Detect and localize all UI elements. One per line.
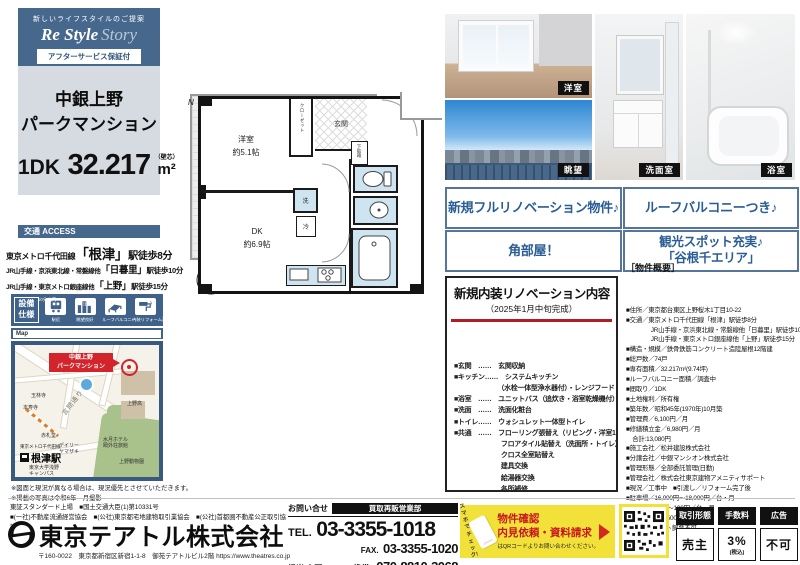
company-url: https://www.theatres.co.jp xyxy=(216,553,290,560)
feature-renovated: 内装リフォーム済 xyxy=(130,298,160,323)
brand-header: 新しいライフスタイルのご提案 Re StyleStory アフターサービス保証付 xyxy=(18,8,160,66)
photo-label: 洋室 xyxy=(558,81,589,95)
property-size: 1DK 32.217 （壁芯） m² xyxy=(18,149,160,182)
station-label: 根津駅 xyxy=(20,450,61,465)
map-poi: 上野動物園 xyxy=(119,459,144,465)
fax-number: 03-3355-1020 xyxy=(383,541,458,556)
overview-line: ■土地権利／所有権 xyxy=(626,395,798,405)
overview-line: ■分譲会社／中銀マンシオン株式会社 xyxy=(626,454,798,464)
renovation-item: ■浴室 …… ユニットバス（追炊き・浴室乾燥機付） xyxy=(454,394,609,405)
photo-label: 浴室 xyxy=(761,163,792,177)
toilet-icon xyxy=(355,167,396,191)
overview-line: ■住所／東京都台東区上野桜木1丁目10-22 xyxy=(626,306,798,316)
feature-good-view: 眺望良好 xyxy=(70,298,100,323)
floor-area-value: 32.217 xyxy=(67,149,150,181)
overview-line: ■管理費／6,100円／月 xyxy=(626,415,798,425)
arrow-right-icon xyxy=(599,524,610,540)
property-name-panel: 中銀上野 パークマンション 1DK 32.217 （壁芯） m² xyxy=(18,66,160,195)
feature-roof-balcony: ルーフバルコニー xyxy=(100,298,130,323)
catchphrase-corner-room: 角部屋！ xyxy=(445,230,622,272)
property-name: 中銀上野 パークマンション xyxy=(18,66,160,137)
map-notes: ※図面と現況が異なる場合は、現況優先とさせていただきます。 ※掲載の写真は令和6… xyxy=(11,484,201,504)
deal-header: 取引形態 xyxy=(676,507,714,525)
overview-line: ■現況／工事中 ■引渡し／リフォーム完了後 xyxy=(626,484,798,494)
property-name-line1: 中銀上野 xyxy=(18,88,160,113)
qr-code xyxy=(619,504,669,558)
feature-label: 内装リフォーム済 xyxy=(132,316,158,322)
station-icon xyxy=(20,453,29,462)
interior-wall xyxy=(201,190,293,193)
kitchen-counter xyxy=(286,265,346,286)
contact-block: お問い合せ 買取再販営業部 TEL. 03-3355-1018 FAX. 03-… xyxy=(288,503,458,565)
deal-value: 不可 xyxy=(760,528,798,561)
feature-label: 駅近 xyxy=(43,316,68,322)
overview-line: ■交通／東京メトロ千代田線「根津」駅徒歩8分 xyxy=(626,316,798,326)
washer-space: 洗 xyxy=(293,188,318,213)
renovation-item: ■キッチン…… システムキッチン xyxy=(454,372,609,383)
qr-code-icon xyxy=(624,511,664,551)
brand-logo-main: Re Style xyxy=(41,25,98,44)
photo-western-room: 洋室 xyxy=(445,14,592,98)
renovation-detail-box: 新規内装リノベーション内容 （2025年1月中旬完成） ■玄関 …… 玄関収納■… xyxy=(445,276,618,492)
overview-title: ［物件概要］ xyxy=(626,261,798,274)
overview-line: ■管理会社／株式会社東京建物アメニティサポート xyxy=(626,474,798,484)
promo-note: はQRコードよりお問い合わせください。 xyxy=(497,542,599,550)
interior-wall xyxy=(315,149,351,151)
access-header: 交通 ACCESS xyxy=(18,225,160,238)
property-name-line2: パークマンション xyxy=(18,113,160,138)
overview-line: ■施工会社／松井建設株式会社 xyxy=(626,444,798,454)
overview-line: ■修繕積立金／6,980円／月 xyxy=(626,425,798,435)
brand-logo-sub: Story xyxy=(101,25,137,44)
fridge-space: 冷 xyxy=(296,216,316,237)
renovation-item: クロス全室貼替え xyxy=(454,450,609,461)
telephone-row: TEL. 03-3355-1018 xyxy=(288,518,458,542)
photo-mirror xyxy=(617,36,663,94)
toilet-room xyxy=(353,165,398,193)
photo-door xyxy=(665,22,679,174)
photo-bathroom: 浴室 xyxy=(686,14,795,180)
overview-line: ■総戸数／74戸 xyxy=(626,355,798,365)
wall-pillar xyxy=(410,284,424,294)
access-main-walk: 駅徒歩8分 xyxy=(128,251,172,262)
map-poi: デイリー ヤマザキ xyxy=(59,443,79,456)
map-poi: 水月ホテル 鴎外荘旅館 xyxy=(103,437,128,450)
map-poi: 上野高 xyxy=(127,401,142,407)
renovation-item-list: ■玄関 …… 玄関収納■キッチン…… システムキッチン （水栓一体型浄水器付）・… xyxy=(454,327,609,492)
photo-label: 眺望 xyxy=(558,163,589,177)
buildings-icon xyxy=(75,298,96,315)
feature-icon-bar: 設備 仕様 10分以内 駅近 眺望良好 ルーフバルコニー 内装リフォーム済 xyxy=(11,294,163,326)
photo-accent-wall xyxy=(539,14,592,66)
access-main-line: 東京メトロ千代田線「根津」駅徒歩8分 xyxy=(6,243,172,264)
renovation-item: フロアタイル貼替え（洗面所・トイレ） xyxy=(454,439,609,450)
company-identity: 東京テアトル株式会社 xyxy=(8,517,284,552)
overview-line: ■管理形態／全部委託管理(日勤) xyxy=(626,464,798,474)
renovation-item: （水栓一体型浄水器付）・レンジフード xyxy=(454,383,609,394)
floor-plan: 玄関 クローゼット 下駄箱 洋室 約5.1帖 DK 約6.9帖 洗 冷 xyxy=(190,94,440,500)
map-poi: 東京大学浅野 キャンパス xyxy=(29,465,59,478)
map-poi: 本寿寺 xyxy=(23,405,38,411)
photo-vanity xyxy=(613,100,663,148)
photo-view: 眺望 xyxy=(445,100,592,180)
dining-kitchen-room: DK 約6.9帖 xyxy=(203,209,311,269)
note-line: ※図面と現況が異なる場合は、現況優先とさせていただきます。 xyxy=(11,484,201,494)
closet: クローゼット xyxy=(289,99,313,157)
floor-plan-type: 1DK xyxy=(18,156,60,179)
map-tab-bar: Map xyxy=(11,328,163,339)
feature-label: ルーフバルコニー xyxy=(102,316,128,322)
kitchen-icons xyxy=(287,266,344,284)
company-name: 東京テアトル株式会社 xyxy=(39,517,284,552)
western-room: 洋室 約5.1帖 xyxy=(203,115,289,179)
inquiry-label: お問い合せ xyxy=(288,503,328,514)
promo-line2: 内見依頼・資料請求 xyxy=(497,527,599,540)
access-main-line-name: 東京メトロ千代田線 xyxy=(6,252,75,261)
deal-terms-table: 取引形態 売主 手数料 3%(税込) 広告 不可 xyxy=(676,507,798,561)
overview-line: ■構造・規模／鉄骨鉄筋コンクリート造陸屋根12階建 xyxy=(626,345,798,355)
renovation-item: ■トイレ…… ウォシュレット一体型トイレ xyxy=(454,417,609,428)
deal-col-transaction: 取引形態 売主 xyxy=(676,507,714,561)
after-service-badge: アフターサービス保証付 xyxy=(37,49,141,64)
footer-divider xyxy=(8,498,795,499)
department-badge: 買取再販営業部 xyxy=(332,503,458,514)
deal-header: 広告 xyxy=(760,507,798,525)
deal-value: 売主 xyxy=(676,528,714,561)
qr-promo-banner: スマホで チェック! 物件確認 内見依頼・資料請求 はQRコードよりお問い合わせ… xyxy=(460,505,615,558)
shoe-box: 下駄箱 xyxy=(351,141,368,165)
renovation-item: 給湯器交換 xyxy=(454,473,609,484)
renovation-item: ■洗面 …… 洗面化粧台 xyxy=(454,405,609,416)
catchphrase-renovation: 新規フルリノベーション物件♪ xyxy=(445,187,622,229)
deal-col-advertising: 広告 不可 xyxy=(760,507,798,561)
overview-line: ■ルーフバルコニー面積／調査中 xyxy=(626,375,798,385)
feature-label: 眺望良好 xyxy=(73,316,98,322)
deal-header: 手数料 xyxy=(718,507,756,525)
catchphrase-roof-balcony: ルーフバルコニーつき♪ xyxy=(623,187,799,229)
promo-line1: 物件確認 xyxy=(497,513,599,526)
flyer-page: 新しいライフスタイルのご提案 Re StyleStory アフターサービス保証付… xyxy=(0,0,800,565)
access-sub-lines: JR山手線・京浜東北線・常磐線他「日暮里」駅徒歩10分 JR山手線・東京メトロ銀… xyxy=(6,262,156,294)
contact-header: お問い合せ 買取再販営業部 xyxy=(288,503,458,517)
floor-area-unit-wrap: （壁芯） m² xyxy=(155,155,179,179)
balcony-notch xyxy=(400,92,442,120)
basin-icon xyxy=(355,198,396,223)
property-overview: ［物件概要］ ■住所／東京都台東区上野桜木1丁目10-22■交通／東京メトロ千代… xyxy=(626,261,798,534)
bathtub-icon xyxy=(353,230,396,286)
access-sub-line: JR山手線・京浜東北線・常磐線他「日暮里」駅徒歩10分 xyxy=(6,262,156,278)
feature-bar-label: 設備 仕様 xyxy=(14,297,39,323)
access-main-station: 「根津」 xyxy=(75,247,128,262)
overview-line: ■築年数／昭和45年(1970年)10月築 xyxy=(626,405,798,415)
access-sub-line: JR山手線・東京メトロ銀座線他「上野」駅徒歩15分 xyxy=(6,278,156,294)
company-address: 〒160-0022 東京都新宿区新宿1-1-8 御苑テアトルビル2階 https… xyxy=(38,550,290,560)
telephone-number: 03-3355-1018 xyxy=(316,518,435,541)
renovation-item: 各所補修 xyxy=(454,484,609,492)
photo-bathtub xyxy=(707,106,789,166)
brand-logo: Re StyleStory xyxy=(18,25,160,45)
red-divider xyxy=(451,319,612,322)
renovation-item: ■共通 …… フローリング張替え（リビング・洋室1） xyxy=(454,428,609,439)
property-map-marker: 中銀上野 パークマンション xyxy=(49,353,113,372)
listing-line: 東証スタンダード上場 ■国土交通大臣(1)第10331号 xyxy=(10,503,290,513)
promo-text: 物件確認 内見依頼・資料請求 はQRコードよりお問い合わせください。 xyxy=(497,513,599,549)
deal-value: 3%(税込) xyxy=(718,528,756,561)
renovation-title: 新規内装リノベーション内容 xyxy=(454,283,609,302)
overview-line: JR山手線・東京メトロ銀座線他「上野」駅徒歩15分 xyxy=(626,335,798,345)
renovation-item: ■玄関 …… 玄関収納 xyxy=(454,361,609,372)
overview-line-list: ■住所／東京都台東区上野桜木1丁目10-22■交通／東京メトロ千代田線「根津」駅… xyxy=(626,276,798,534)
compass-north-label: N xyxy=(188,98,194,107)
photo-washroom: 洗面室 xyxy=(595,14,683,180)
mobile-number: 携帯. 070-8810-3068 xyxy=(354,558,458,565)
renovation-subtitle: （2025年1月中旬完成） xyxy=(454,303,609,315)
renovation-item: 建具交換 xyxy=(454,461,609,472)
property-location-circle xyxy=(121,359,138,376)
floor-plan-unit: 玄関 クローゼット 下駄箱 洋室 約5.1帖 DK 約6.9帖 洗 冷 xyxy=(198,96,424,294)
map-tab: Map xyxy=(13,330,161,338)
balcony-icon xyxy=(105,298,126,315)
photo-window xyxy=(459,21,533,71)
wall-pillar xyxy=(198,96,212,106)
wall-pillar xyxy=(198,284,212,294)
area-map: 言問通り 中銀上野 パークマンション 玉林寺 本寿寺 赤札堂 デイリー ヤマザキ… xyxy=(11,341,163,481)
deal-col-commission: 手数料 3%(税込) xyxy=(718,507,756,561)
washroom xyxy=(353,196,398,225)
map-poi: 玉林寺 xyxy=(31,393,46,399)
photo-label: 洗面室 xyxy=(639,163,680,177)
map-poi: 赤札堂 xyxy=(41,433,56,439)
photo-light-glow xyxy=(716,20,756,46)
fax-row: FAX. 03-3355-1020 xyxy=(288,540,458,558)
overview-line: 合計:13,080円 xyxy=(626,435,798,445)
bathroom xyxy=(351,228,398,288)
overview-line: ■間取り／1DK xyxy=(626,385,798,395)
photo-shower-bar xyxy=(708,30,711,120)
brand-tagline: 新しいライフスタイルのご提案 xyxy=(18,8,160,24)
contact-person-row: 担当/上野 携帯. 070-8810-3068 xyxy=(288,558,458,565)
overview-line: ■専有面積／32.217m²(9.74坪) xyxy=(626,365,798,375)
feature-station-near: 10分以内 駅近 xyxy=(41,298,71,323)
ten-min-burst: 10分以内 xyxy=(38,297,57,303)
overview-line: JR山手線・京浜東北線・常磐線他「日暮里」駅徒歩10分 xyxy=(626,326,798,336)
floor-area-unit: m² xyxy=(157,161,175,178)
tokyo-theatres-logo-icon xyxy=(8,521,35,548)
reform-icon xyxy=(135,298,156,315)
